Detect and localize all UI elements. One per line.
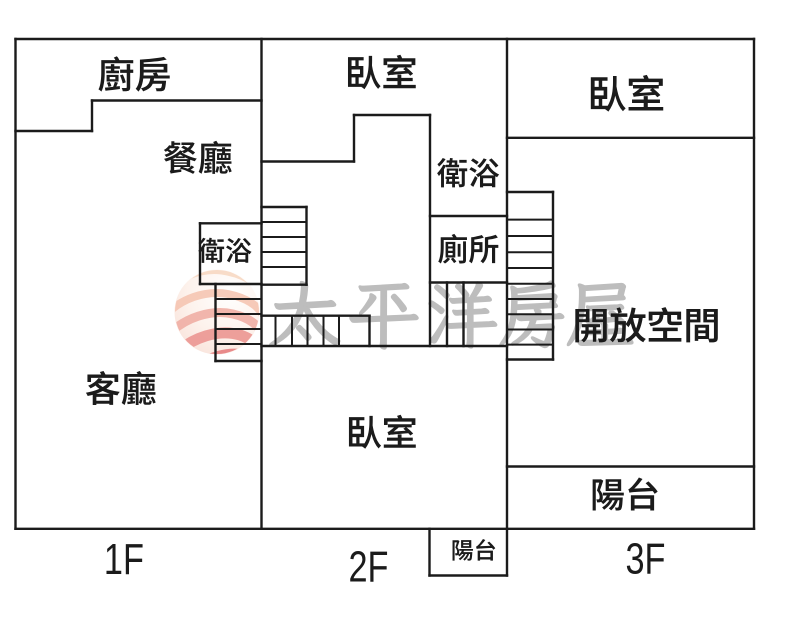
svg-text:1F: 1F [104,535,144,584]
svg-text:3F: 3F [626,535,666,584]
svg-text:2F: 2F [349,543,389,592]
